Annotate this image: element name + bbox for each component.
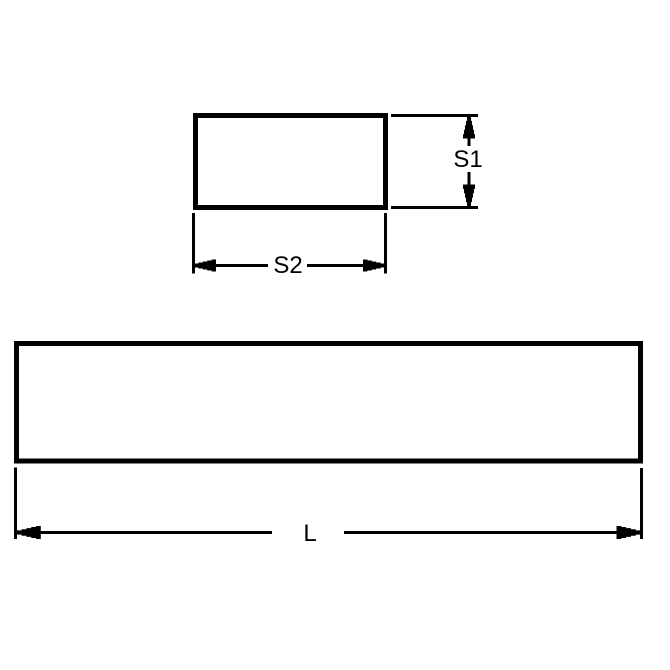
svg-text:S2: S2	[273, 252, 302, 279]
svg-text:L: L	[303, 520, 316, 547]
svg-text:S1: S1	[453, 146, 482, 173]
